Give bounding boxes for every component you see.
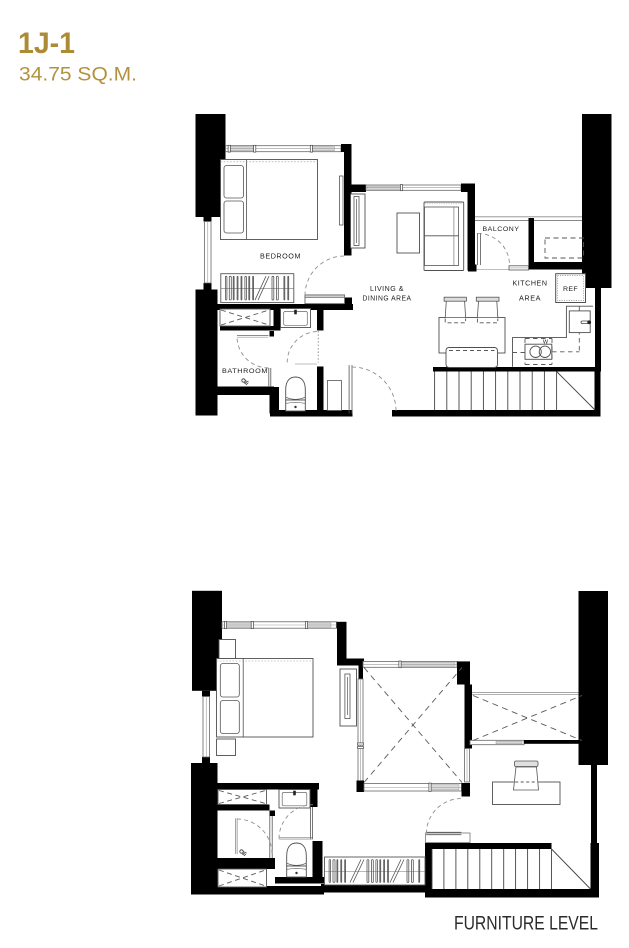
svg-text:W: W (543, 340, 549, 346)
svg-text:FURNITURE LEVEL: FURNITURE LEVEL (454, 913, 598, 935)
svg-text:DINING AREA: DINING AREA (363, 293, 412, 302)
svg-text:KITCHEN: KITCHEN (513, 278, 548, 287)
svg-text:BEDROOM: BEDROOM (260, 251, 301, 260)
svg-text:BATHROOM: BATHROOM (222, 368, 268, 375)
svg-text:BALCONY: BALCONY (483, 226, 520, 233)
svg-text:34.75 SQ.M.: 34.75 SQ.M. (19, 65, 137, 86)
svg-text:1J-1: 1J-1 (18, 27, 75, 60)
svg-text:REF: REF (563, 286, 578, 293)
svg-text:AREA: AREA (519, 293, 541, 302)
svg-text:LIVING &: LIVING & (370, 284, 404, 293)
